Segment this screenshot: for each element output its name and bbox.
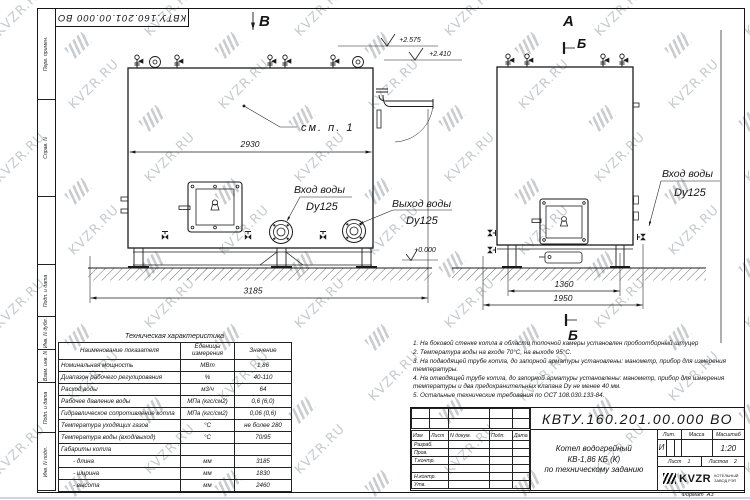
tech-table-cell: 40-110 [235,372,292,384]
tech-table-header: Наименование показателя [59,343,181,360]
titleblock-cell [490,481,513,489]
tech-table-cell: - длина [59,456,181,468]
titleblock-col-header: Лист [430,431,449,441]
frame-side-strip: Перв. примен.Справ. NПодп. и датаИнв. N … [37,8,56,491]
svg-text:+0.000: +0.000 [414,247,436,254]
frame-strip-cell: Инв. N подл. [37,433,55,491]
tech-table-cell: - высота [59,480,181,492]
lit-header: Лит. [658,430,682,440]
tech-table-cell [235,444,292,456]
svg-text:Dy125: Dy125 [406,215,439,227]
top-left-docnumber-box: КВТУ.160.201.00.000 ВО [55,8,189,27]
titleblock-role-label: Т.контр. [412,457,449,465]
inlet-fitting [638,234,646,240]
titleblock-cell [490,465,513,473]
titleblock-cell [513,481,530,489]
frame-strip-cell: Взам. инв. N [37,350,55,383]
tech-table-body: Наименование показателяЕденицы измерения… [58,342,291,492]
tech-table-cell: 3185 [235,456,292,468]
tech-table-cell: 2460 [235,480,292,492]
note-item: 1. На боковой стенке котла в области топ… [413,340,746,348]
tech-table-header: Значение [235,343,292,360]
titleblock-cell [490,457,513,465]
door-lock-icon [561,217,568,226]
svg-text:см. п. 1: см. п. 1 [301,122,354,134]
titleblock-col-header: Дата [513,431,530,441]
tech-table-cell: не более 280 [235,420,292,432]
titleblock-cell [513,441,530,449]
titleblock-cell [490,473,513,481]
titleblock-role-label [412,465,449,473]
level-mark-0000: +0.000 [402,247,438,261]
note-item: 5. Остальные технические требования по О… [413,392,746,400]
water-inlet-callout: Вход воды Dy125 [287,184,352,221]
frame-strip-cell: Подп. и дата [37,383,55,433]
tech-table-cell: 70/95 [235,432,292,444]
titleblock-cell [449,419,490,429]
sheet-cell: Лист1 [658,457,702,467]
tech-table-cell: м3/ч [181,384,235,396]
titleblock-cell [449,457,490,465]
titleblock-role-label: Разраб. [412,441,449,449]
frame-strip-cell [37,197,55,265]
view-arrow-b: В [253,12,270,30]
frame-strip-cell: Подп. и дата [37,265,55,317]
titleblock-cell [449,409,490,419]
tech-table-cell: % [181,372,235,384]
tech-table-cell: Габариты котла [59,444,181,456]
notes-list: 1. На боковой стенке котла в области топ… [413,340,746,401]
note-item: 2. Температура воды на входе 70°С, на вы… [413,349,746,357]
titleblock-cell [412,419,430,429]
ground-hatch [452,269,706,281]
titleblock-cell [449,481,490,489]
svg-text:Выход воды: Выход воды [392,198,451,210]
kvzr-logo-icon [663,473,676,484]
level-mark-2575: +2.575 [338,34,438,46]
titleblock-role-label: Утв. [412,481,449,489]
tech-table-cell: Расход воды [59,384,181,396]
titleblock-cell [513,473,530,481]
see-note-callout: см. п. 1 [243,105,355,134]
frame-strip-cell: Инв. N дубл. [37,317,55,350]
titleblock-change-grid [411,408,530,430]
titleblock-col-header: Изм [412,431,430,441]
access-door [179,182,242,232]
svg-text:Dy125: Dy125 [674,187,707,199]
tech-table-cell: °С [181,432,235,444]
elbow-pipe [376,89,433,142]
tech-table-cell: 0,06 (0,6) [235,408,292,420]
titleblock-cell [513,465,530,473]
svg-text:Б: Б [577,36,586,51]
dim-1360-label: 1360 [555,279,574,289]
titleblock-cell [449,465,490,473]
lit-value: И [658,440,682,457]
titleblock-cell [490,419,513,429]
ground-hatch [88,269,432,281]
titleblock-cell [449,441,490,449]
titleblock-role-label: Н.контр. [412,473,449,481]
tech-table-header: Еденицы измерения [181,343,235,360]
front-door [532,199,588,244]
boiler-side-view: 2930 3185 +2.575 +2.410 +0.000 [88,12,462,303]
titleblock-cell [513,457,530,465]
svg-text:Вход воды: Вход воды [662,168,713,180]
section-mark-bottom: Б [566,314,578,343]
tech-table-cell: Диапазон рабочего регулирования [59,372,181,384]
top-left-docnumber: КВТУ.160.201.00.000 ВО [57,12,186,23]
tech-table-cell: мм [181,468,235,480]
titleblock-cell [412,409,430,419]
tech-table-cell: МПа (кгс/см2) [181,408,235,420]
tech-table-cell: Номинальная мощность [59,360,181,372]
view-label-a: А [562,13,574,30]
doc-number: КВТУ.160.201.00.000 ВО [530,408,744,430]
svg-text:В: В [259,13,270,30]
section-mark-top: Б [564,36,586,54]
tech-table-cell: 64 [235,384,292,396]
dim-2930-label: 2930 [240,139,260,149]
tech-table-title: Техническая характеристика [58,333,291,340]
titleblock-left-grid: ИзмЛистN докум.Подп.ДатаРазраб.Пров.Т.ко… [411,430,530,490]
base-frame-front [497,245,633,267]
water-inlet2-callout: Вход воды Dy125 [649,168,720,226]
tech-table-cell [181,444,235,456]
boiler-front-view: А Б [452,13,721,343]
svg-text:+2.410: +2.410 [429,51,451,58]
tech-table-cell: мм [181,480,235,492]
tech-table-cell: Гидравлическое сопротивление котла [59,408,181,420]
drawing-sheet: KVZR.RUKVZR.RUKVZR.RUKVZR.RUKVZR.RUKVZR.… [0,0,750,500]
titleblock-role-label: Пров. [412,449,449,457]
tech-table-cell: Температура воды (вход/выход) [59,432,181,444]
tech-table-cell: МВт [181,360,235,372]
base-frame [128,248,377,267]
tech-table: Техническая характеристика Наименование … [58,333,291,492]
titleblock-cell [490,409,513,419]
titleblock-cell [449,449,490,457]
note-item: 3. На подводящей трубе котла, до запорно… [413,358,746,374]
tech-table-cell: 1830 [235,468,292,480]
page-bottom-edge [0,497,750,499]
company-logo: KVZR КОТЕЛЬНЫЙ ЗАВОД РЭП [658,467,744,490]
note-item: 4. На отводящей трубе котла, до запорной… [413,375,746,391]
svg-text:Dy125: Dy125 [306,201,339,213]
water-inlet-flange [270,221,293,244]
svg-text:Вход воды: Вход воды [294,184,345,196]
dim-1950-label: 1950 [554,293,573,303]
titleblock-cell [490,449,513,457]
product-title: Котел водогрейный КВ-1,86 КБ (К) по техн… [530,430,657,490]
door-lock-icon [211,200,219,210]
dim-3185-label: 3185 [244,286,263,296]
frame-strip-cell: Справ. N [37,100,55,197]
titleblock-cell [449,473,490,481]
titleblock-cell [490,441,513,449]
tech-table-cell: МПа (кгс/см2) [181,396,235,408]
tech-table-cell: - ширина [59,468,181,480]
titleblock-col-header: N докум. [449,431,490,441]
frame-strip-cell: Перв. примен. [37,8,55,100]
level-mark-2410: +2.410 [384,48,462,60]
svg-text:+2.575: +2.575 [399,37,421,44]
tech-table-cell: Температура уходящих газов [59,420,181,432]
titleblock-cell [430,419,449,429]
tech-table-cell: 1,86 [235,360,292,372]
mass-header: Масса [682,430,713,440]
titleblock-cell [513,449,530,457]
tech-table-cell: мм [181,456,235,468]
titleblock-cell [513,409,530,419]
titleblock-cell [430,409,449,419]
tech-table-cell: Рабочее давление воды [59,396,181,408]
mass-value [682,440,713,457]
titleblock-col-header: Подп. [490,431,513,441]
scale-value: 1:20 [713,440,744,457]
sheets-cell: Листов2 [702,457,744,467]
titleblock-cell [513,419,530,429]
scale-header: Масштаб [713,430,744,440]
tech-table-cell: 0,6 (6,0) [235,396,292,408]
tech-table-cell: °С [181,420,235,432]
title-block: КВТУ.160.201.00.000 ВО ИзмЛистN докум.По… [410,407,745,491]
